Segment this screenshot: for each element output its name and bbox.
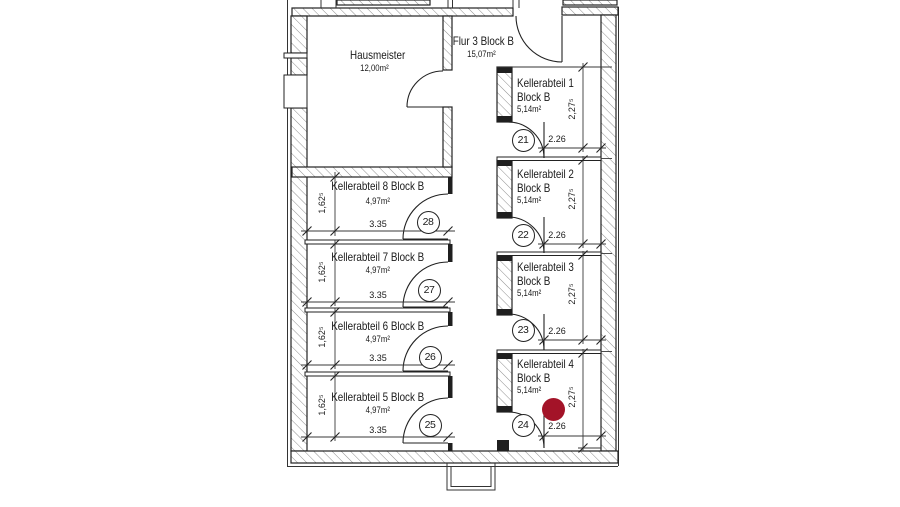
room-block-keller4: Block B <box>517 372 558 385</box>
room-label-keller7: Kellerabteil 7 Block B <box>308 251 448 264</box>
door-badge-27: 27 <box>418 279 441 302</box>
room-label-flur: Flur 3 Block B <box>423 35 543 48</box>
door-arc-hausmeister <box>407 71 443 107</box>
room-area-keller2: 5,14m² <box>517 196 547 206</box>
room-area-keller6: 4,97m² <box>308 335 448 345</box>
dim-width-keller5: 3.35 <box>348 425 408 435</box>
room-area-keller4: 5,14m² <box>517 386 547 396</box>
floor-plan-drawing <box>0 0 900 507</box>
dim-height-keller4: 2,27⁵ <box>567 375 577 419</box>
room-label-keller4: Kellerabteil 4 <box>517 358 586 371</box>
door-badge-23: 23 <box>512 319 535 342</box>
dim-height-keller3: 2,27⁵ <box>567 272 577 316</box>
room-area-flur: 15,07m² <box>425 50 537 60</box>
room-label-keller6: Kellerabteil 6 Block B <box>308 320 448 333</box>
dim-height-keller7: 1,62⁵ <box>317 250 327 294</box>
room-area-keller3: 5,14m² <box>517 289 547 299</box>
door-badge-21: 21 <box>512 129 535 152</box>
room-area-hausmeister: 12,00m² <box>308 64 440 74</box>
door-badge-25: 25 <box>419 414 442 437</box>
room-block-keller3: Block B <box>517 275 558 288</box>
dim-width-keller1: 2.26 <box>532 134 582 144</box>
door-badge-22: 22 <box>512 224 535 247</box>
room-block-keller2: Block B <box>517 182 558 195</box>
room-area-keller7: 4,97m² <box>308 266 448 276</box>
dim-height-keller6: 1,62⁵ <box>317 315 327 359</box>
light-shaft <box>447 463 495 490</box>
dim-height-keller8: 1,62⁵ <box>317 181 327 225</box>
dim-width-keller2: 2.26 <box>532 230 582 240</box>
floor-plan: Hausmeister 12,00m² Flur 3 Block B 15,07… <box>0 0 900 507</box>
dim-width-keller4: 2.26 <box>532 421 582 431</box>
dim-width-keller3: 2.26 <box>532 326 582 336</box>
door-badge-28: 28 <box>417 211 440 234</box>
dim-height-keller2: 2,27⁵ <box>567 177 577 221</box>
door-badge-26: 26 <box>419 346 442 369</box>
room-area-keller1: 5,14m² <box>517 105 547 115</box>
dim-width-keller6: 3.35 <box>348 353 408 363</box>
door-badge-24: 24 <box>512 414 535 437</box>
click-marker <box>542 398 565 421</box>
dim-width-keller7: 3.35 <box>348 290 408 300</box>
room-label-keller8: Kellerabteil 8 Block B <box>308 180 448 193</box>
room-label-keller5: Kellerabteil 5 Block B <box>308 391 448 404</box>
dim-width-keller8: 3.35 <box>348 219 408 229</box>
dim-height-keller1: 2,27⁵ <box>567 87 577 131</box>
dim-height-keller5: 1,62⁵ <box>317 383 327 427</box>
room-block-keller1: Block B <box>517 91 558 104</box>
room-area-keller8: 4,97m² <box>308 197 448 207</box>
